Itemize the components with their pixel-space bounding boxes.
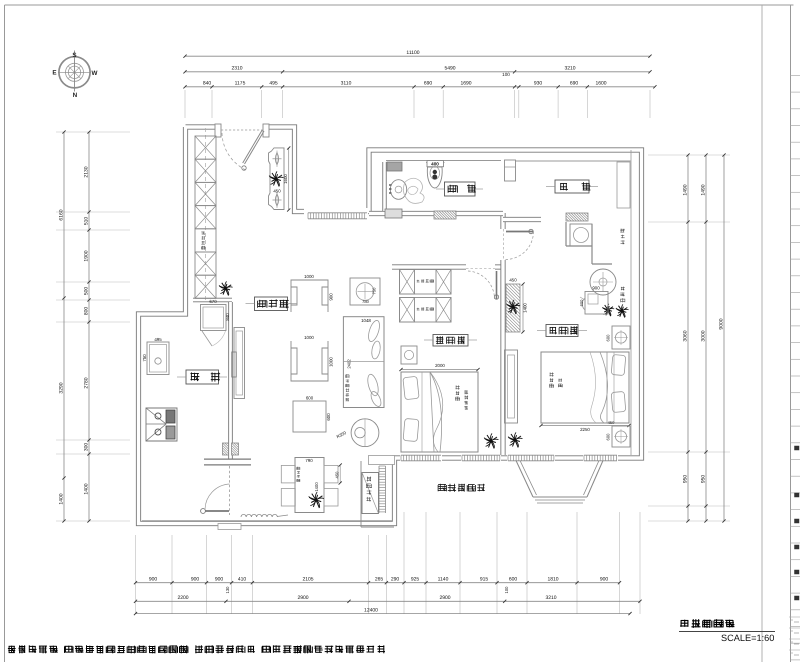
svg-text:9000: 9000 bbox=[719, 318, 725, 329]
svg-text:S: S bbox=[72, 52, 76, 59]
svg-text:1400: 1400 bbox=[84, 483, 90, 494]
svg-text:2900: 2900 bbox=[439, 595, 450, 601]
svg-text:450: 450 bbox=[335, 471, 340, 479]
svg-text:1000: 1000 bbox=[304, 274, 314, 279]
svg-text:600: 600 bbox=[579, 299, 584, 306]
svg-text:11100: 11100 bbox=[406, 50, 419, 56]
svg-text:900: 900 bbox=[592, 286, 600, 291]
svg-text:900: 900 bbox=[191, 577, 200, 583]
svg-text:2900: 2900 bbox=[297, 595, 308, 601]
svg-text:750: 750 bbox=[142, 354, 147, 362]
svg-text:450: 450 bbox=[273, 189, 281, 194]
svg-text:600: 600 bbox=[606, 433, 611, 441]
svg-text:450: 450 bbox=[608, 420, 615, 425]
svg-text:1490: 1490 bbox=[683, 184, 689, 195]
svg-text:2000: 2000 bbox=[435, 363, 445, 368]
svg-text:3210: 3210 bbox=[545, 595, 556, 601]
svg-text:265: 265 bbox=[375, 577, 384, 583]
svg-text:3060: 3060 bbox=[683, 330, 689, 341]
svg-text:900: 900 bbox=[149, 577, 158, 583]
svg-text:600: 600 bbox=[326, 413, 331, 421]
svg-text:900: 900 bbox=[600, 577, 609, 583]
svg-text:1048: 1048 bbox=[361, 318, 371, 323]
svg-text:1900: 1900 bbox=[84, 250, 90, 261]
svg-text:290: 290 bbox=[391, 577, 400, 583]
svg-text:3110: 3110 bbox=[341, 81, 352, 87]
svg-text:130: 130 bbox=[225, 586, 230, 594]
svg-text:900: 900 bbox=[215, 577, 224, 583]
svg-text:1140: 1140 bbox=[438, 577, 449, 583]
svg-text:400: 400 bbox=[431, 161, 439, 166]
svg-text:915: 915 bbox=[480, 577, 489, 583]
svg-text:925: 925 bbox=[411, 577, 420, 583]
svg-text:N: N bbox=[73, 92, 78, 99]
svg-text:E: E bbox=[52, 70, 56, 77]
svg-text:495: 495 bbox=[154, 337, 162, 342]
svg-text:600: 600 bbox=[509, 577, 518, 583]
svg-text:100: 100 bbox=[504, 586, 509, 594]
svg-text:3210: 3210 bbox=[564, 66, 575, 72]
svg-text:930: 930 bbox=[534, 81, 543, 87]
svg-text:780: 780 bbox=[362, 299, 370, 304]
svg-text:1490: 1490 bbox=[701, 184, 707, 195]
svg-text:450: 450 bbox=[509, 278, 517, 283]
svg-text:750: 750 bbox=[372, 287, 377, 295]
svg-text:1000: 1000 bbox=[329, 357, 334, 367]
svg-text:2310: 2310 bbox=[231, 66, 242, 72]
svg-text:3000: 3000 bbox=[701, 330, 707, 341]
svg-text:2250: 2250 bbox=[580, 427, 590, 432]
svg-text:1600: 1600 bbox=[595, 81, 606, 87]
svg-text:950: 950 bbox=[701, 475, 707, 484]
svg-text:2130: 2130 bbox=[84, 166, 90, 177]
svg-text:6160: 6160 bbox=[59, 209, 65, 220]
svg-text:1600: 1600 bbox=[283, 174, 288, 184]
svg-text:2105: 2105 bbox=[302, 577, 313, 583]
svg-text:840: 840 bbox=[225, 313, 230, 321]
svg-text:100: 100 bbox=[502, 72, 510, 77]
svg-text:2780: 2780 bbox=[84, 377, 90, 388]
svg-text:1400: 1400 bbox=[314, 482, 319, 492]
svg-text:300: 300 bbox=[84, 443, 90, 452]
svg-text:W: W bbox=[92, 70, 98, 77]
svg-text:510: 510 bbox=[84, 217, 90, 226]
svg-text:1175: 1175 bbox=[235, 81, 246, 87]
svg-text:12400: 12400 bbox=[364, 607, 378, 613]
svg-text:3290: 3290 bbox=[59, 382, 65, 393]
svg-text:2402: 2402 bbox=[347, 359, 352, 369]
svg-text:1400: 1400 bbox=[59, 493, 65, 504]
svg-text:5490: 5490 bbox=[444, 66, 455, 72]
svg-text:690: 690 bbox=[424, 81, 433, 87]
svg-text:600: 600 bbox=[306, 396, 314, 401]
svg-text:495: 495 bbox=[269, 81, 278, 87]
svg-text:690: 690 bbox=[570, 81, 579, 87]
svg-text:950: 950 bbox=[683, 475, 689, 484]
svg-text:800: 800 bbox=[84, 307, 90, 316]
svg-text:790: 790 bbox=[305, 458, 313, 463]
svg-text:1690: 1690 bbox=[460, 81, 471, 87]
svg-text:410: 410 bbox=[238, 577, 247, 583]
svg-text:1400: 1400 bbox=[523, 303, 528, 313]
svg-text:500: 500 bbox=[84, 287, 90, 296]
svg-text:600: 600 bbox=[606, 334, 611, 342]
svg-text:1000: 1000 bbox=[304, 335, 314, 340]
svg-text:2200: 2200 bbox=[177, 595, 188, 601]
svg-text:670: 670 bbox=[209, 299, 217, 304]
svg-text:900: 900 bbox=[329, 293, 334, 301]
svg-text:SCALE=1:60: SCALE=1:60 bbox=[721, 633, 774, 643]
svg-text:1810: 1810 bbox=[547, 577, 558, 583]
svg-text:840: 840 bbox=[203, 81, 212, 87]
